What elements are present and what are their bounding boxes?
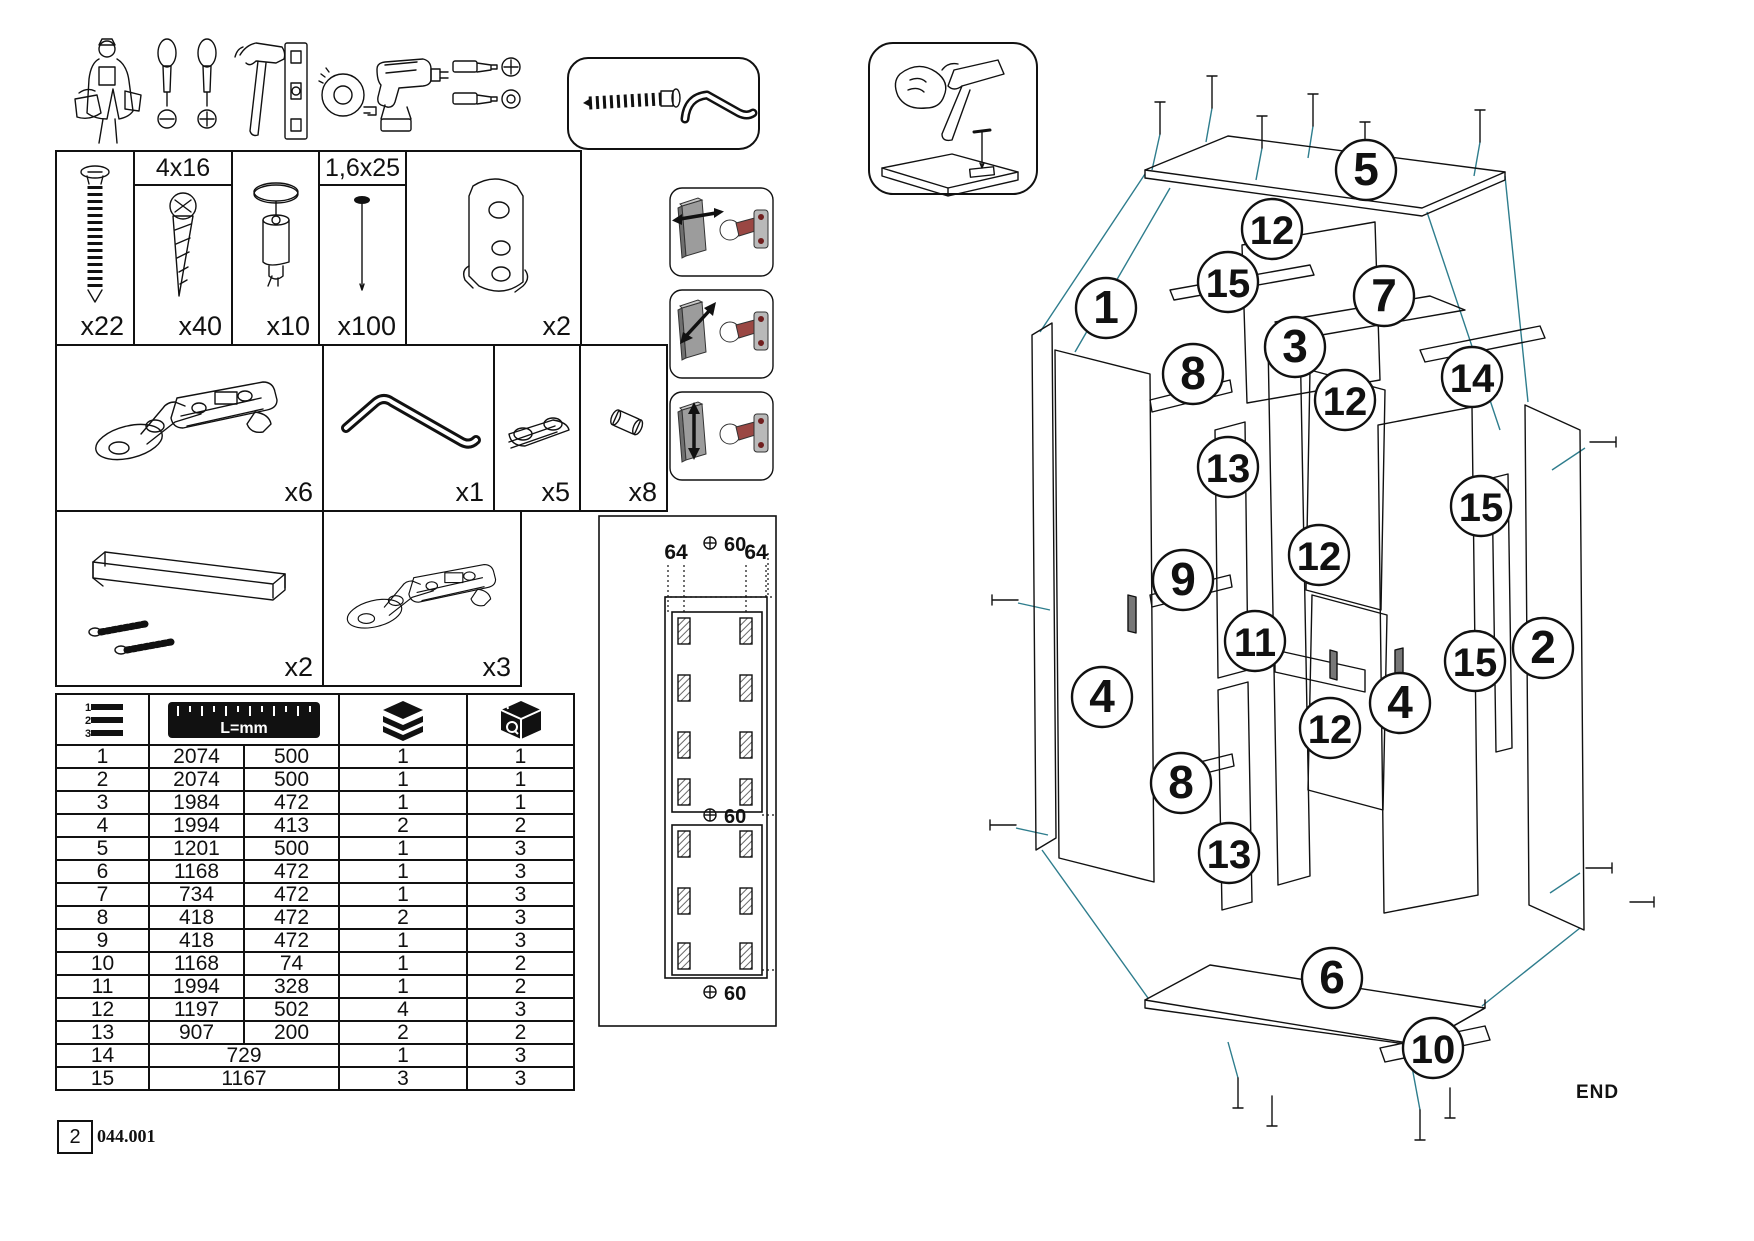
parts-table-cell: 7 [56,883,149,906]
part-balloon: 15 [1198,252,1258,312]
parts-table-cell: 3 [56,791,149,814]
svg-text:11: 11 [1234,621,1276,665]
hanging-rail-bracket-icon [443,170,553,320]
svg-text:3: 3 [85,728,91,740]
parts-table-cell: 3 [467,883,574,906]
offset-60-top: 60 [724,534,746,556]
size-label: 4x16 [133,152,233,186]
part-balloon: 3 [1265,317,1325,377]
parts-table-cell: 1168 [149,860,244,883]
bottom-screw-pins [1233,1078,1455,1140]
qty-label: x8 [628,479,657,506]
hardware-cell-rail-holder: x5 [493,344,581,512]
screw-mark-icon [704,986,716,998]
parts-table-cell: 3 [467,1044,574,1067]
qty-label: x2 [542,313,571,340]
parts-table-cell: 3 [467,998,574,1021]
parts-table-cell: 1 [467,791,574,814]
nail-icon [320,188,405,312]
door-handle [1128,595,1136,633]
middle-partition [1268,333,1310,885]
parts-table-cell: 1994 [149,975,244,998]
confirmat-instruction-box [565,55,762,152]
parts-table-row: 4199441322 [56,814,574,837]
column-package [467,694,574,745]
page-number: 2 [69,1126,80,1149]
parts-table-cell: 8 [56,906,149,929]
tools-row [55,33,525,148]
screw-pins [1155,76,1485,154]
flat-screwdriver-icon [158,39,176,128]
screw-mark-icon [704,537,716,549]
hardware-cell-hinge: x6 [55,344,324,512]
parts-table-cell: 3 [467,860,574,883]
hardware-cell-shelf-pin: x8 [579,344,668,512]
parts-table-cell: 413 [244,814,339,837]
package-icon [499,699,543,741]
parts-table-cell: 15 [56,1067,149,1090]
parts-table-cell: 418 [149,906,244,929]
allen-key-icon [685,95,753,119]
hinge-adjust-box-horizontal [668,186,775,278]
hardware-cell-nail: 1,6x25 x100 [318,150,407,346]
svg-text:12: 12 [1323,380,1368,424]
qty-label: x1 [455,479,484,506]
parts-table-cell: 1201 [149,837,244,860]
parts-table-cell: 2 [339,906,467,929]
svg-text:2: 2 [85,715,91,727]
svg-text:7: 7 [1371,269,1397,321]
top-panel [1145,136,1505,208]
parts-table-cell: 1168 [149,952,244,975]
phillips-screwdriver-icon [198,39,216,128]
parts-table-row: 1390720022 [56,1021,574,1044]
parts-table-cell: 2074 [149,768,244,791]
worker-icon [75,39,141,143]
parts-table-cell: 4 [339,998,467,1021]
svg-text:12: 12 [1250,209,1295,253]
parts-table-cell: 74 [244,952,339,975]
parts-table-cell: 418 [149,929,244,952]
left-side-panel [1032,323,1056,850]
parts-table-cell: 729 [149,1044,339,1067]
balloon-layer: 51215713148121315129111524412813610 [1072,140,1573,1078]
parts-table-cell: 200 [244,1021,339,1044]
offset-60-bottom: 60 [724,983,746,1005]
part-balloon: 12 [1300,698,1360,758]
layers-icon [379,699,427,741]
hardware-cell-hinge-2: x3 [322,510,522,687]
parts-table-cell: 3 [467,929,574,952]
parts-table-row: 2207450011 [56,768,574,791]
parts-table-cell: 734 [149,883,244,906]
assembly-instruction-page: x22 4x16 x40 x10 1,6x25 x100 [0,0,1754,1241]
parts-table-cell: 1 [56,745,149,768]
parts-table-cell: 2 [467,814,574,837]
parts-table-cell: 2 [56,768,149,791]
svg-text:5: 5 [1353,143,1379,195]
left-door [1055,350,1154,882]
parts-table-cell: 2 [467,1021,574,1044]
qty-label: x10 [266,313,310,340]
svg-text:1: 1 [1093,281,1119,333]
parts-table-cell: 1 [339,791,467,814]
parts-table-wrap: 1 2 3 [55,693,575,1091]
svg-text:8: 8 [1180,347,1206,399]
confirmat-screw-icon [57,158,133,308]
parts-table-body: 1207450011220745001131984472114199441322… [56,745,574,1090]
parts-table-cell: 5 [56,837,149,860]
parts-table-cell: 1 [339,975,467,998]
size-label: 1,6x25 [318,152,407,186]
parts-table-cell: 907 [149,1021,244,1044]
parts-table-cell: 500 [244,745,339,768]
parts-table-cell: 500 [244,768,339,791]
hardware-cell-cam-dowel: x10 [231,150,321,346]
qty-label: x100 [337,313,396,340]
hardware-cell-allen-key: x1 [322,344,495,512]
svg-text:14: 14 [1450,357,1495,401]
parts-table-cell: 2 [467,975,574,998]
part-balloon: 12 [1289,525,1349,585]
parts-table-cell: 2074 [149,745,244,768]
part-balloon: 9 [1153,550,1213,610]
parts-table-cell: 3 [467,906,574,929]
part-balloon: 1 [1076,278,1136,338]
parts-table-cell: 1 [467,745,574,768]
parts-table-cell: 1984 [149,791,244,814]
parts-table-cell: 11 [56,975,149,998]
column-layer-count [339,694,467,745]
part-balloon: 15 [1451,476,1511,536]
parts-table-cell: 1994 [149,814,244,837]
hardware-cell-handle: x2 [55,510,324,687]
offset-60-mid: 60 [724,806,746,828]
parts-table-row: 773447213 [56,883,574,906]
numbered-list-icon: 1 2 3 [77,700,129,740]
part-balloon: 4 [1072,667,1132,727]
parts-table-cell: 1 [339,745,467,768]
parts-table: 1 2 3 [55,693,575,1091]
svg-text:2: 2 [1530,621,1556,673]
parts-table-cell: 10 [56,952,149,975]
hinge-icon [77,364,302,489]
screw-mark-icon [704,809,716,821]
parts-table-row: 6116847213 [56,860,574,883]
parts-table-row: 1207450011 [56,745,574,768]
qty-label: x5 [541,479,570,506]
part-balloon: 8 [1151,753,1211,813]
hardware-cell-hanging-rail-bracket: x2 [405,150,582,346]
hardware-cell-wood-screw: 4x16 x40 [133,150,233,346]
drill-driver-icon [377,59,448,131]
parts-table-cell: 2 [339,1021,467,1044]
part-balloon: 2 [1513,618,1573,678]
part-balloon: 13 [1199,823,1259,883]
parts-table-cell: 14 [56,1044,149,1067]
parts-table-row: 1011687412 [56,952,574,975]
dim-64-left: 64 [664,541,688,564]
part-balloon: 8 [1163,344,1223,404]
parts-table-cell: 472 [244,791,339,814]
cam-dowel-icon [233,172,319,322]
hinge-icon [332,536,516,666]
svg-text:6: 6 [1319,951,1345,1003]
hinge-adjust-box-vertical [668,390,775,482]
svg-text:9: 9 [1170,553,1196,605]
shelf-pin-icon [595,394,655,464]
parts-table-header-row: 1 2 3 [56,694,574,745]
parts-table-cell: 4 [56,814,149,837]
parts-table-cell: 12 [56,998,149,1021]
document-code: 044.001 [97,1126,156,1147]
qty-label: x40 [178,313,222,340]
confirmat-screw-icon [583,89,680,107]
handle-icon [67,526,312,666]
parts-table-cell: 1197 [149,998,244,1021]
rail-holder-icon [501,392,577,472]
hand-icon [895,66,945,108]
hinge-icon [720,414,768,452]
part-balloon: 15 [1445,631,1505,691]
parts-table-cell: 1 [339,929,467,952]
parts-table-cell: 1 [339,768,467,791]
parts-table-cell: 1 [339,837,467,860]
parts-table-cell: 3 [467,837,574,860]
svg-text:4: 4 [1387,676,1413,728]
svg-text:13: 13 [1206,447,1251,491]
parts-table-row: 941847213 [56,929,574,952]
column-part-number: 1 2 3 [56,694,149,745]
rail-handle [1330,650,1337,680]
part-balloon: 12 [1315,370,1375,430]
parts-table-row: 5120150013 [56,837,574,860]
parts-table-cell: 2 [339,814,467,837]
hinge-adjust-box-depth [668,288,775,380]
parts-table-cell: 1 [339,860,467,883]
parts-table-cell: 472 [244,929,339,952]
parts-table-cell: 6 [56,860,149,883]
parts-table-cell: 13 [56,1021,149,1044]
qty-label: x22 [80,313,124,340]
part-balloon: 13 [1198,437,1258,497]
allen-key-icon [332,376,487,476]
drawer-rail [1275,650,1365,692]
parts-table-row: 15116733 [56,1067,574,1090]
parts-table-cell: 1167 [149,1067,339,1090]
part-balloon: 7 [1354,266,1414,326]
parts-table-cell: 9 [56,929,149,952]
exploded-assembly-diagram: 51215713148121315129111524412813610 [980,50,1754,1190]
svg-text:15: 15 [1453,641,1498,685]
tape-measure-icon [319,68,376,116]
phillips-bit-icon [453,58,520,76]
parts-table-row: 3198447211 [56,791,574,814]
column-dimensions: L=mm [149,694,339,745]
parts-table-row: 11199432812 [56,975,574,998]
svg-text:12: 12 [1297,535,1342,579]
parts-table-cell: 1 [339,1044,467,1067]
parts-table-cell: 328 [244,975,339,998]
part-balloon: 14 [1442,347,1502,407]
part-balloon: 6 [1302,948,1362,1008]
spirit-level-icon [285,43,307,139]
hardware-cell-confirmat-screw: x22 [55,150,135,346]
part-balloon: 11 [1225,611,1285,671]
parts-table-cell: 502 [244,998,339,1021]
part-balloon: 10 [1403,1018,1463,1078]
dim-64-right: 64 [744,541,768,564]
parts-table-row: 1472913 [56,1044,574,1067]
part-balloon: 4 [1370,673,1430,733]
parts-table-cell: 1 [339,883,467,906]
svg-text:4: 4 [1089,670,1115,722]
parts-table-row: 841847223 [56,906,574,929]
hammer-icon [235,43,285,136]
hinge-icon [720,210,768,248]
door-icon [678,198,706,258]
qty-label: x6 [284,479,313,506]
parts-table-cell: 472 [244,906,339,929]
svg-text:3: 3 [1282,320,1308,372]
ruler-icon: L=mm [166,700,322,740]
part-balloon: 12 [1242,199,1302,259]
parts-table-cell: 500 [244,837,339,860]
svg-text:10: 10 [1411,1028,1456,1072]
svg-text:8: 8 [1168,756,1194,808]
parts-table-cell: 1 [339,952,467,975]
parts-table-cell: 3 [467,1067,574,1090]
svg-text:13: 13 [1207,833,1252,877]
svg-text:15: 15 [1459,486,1504,530]
parts-table-cell: 472 [244,883,339,906]
ruler-label: L=mm [220,720,268,737]
page-number-box: 2 [57,1120,93,1154]
qty-label: x2 [284,654,313,681]
drilling-template-diagram: 64 64 60 60 60 [598,515,777,1027]
svg-text:1: 1 [85,702,91,714]
parts-table-cell: 1 [467,768,574,791]
assembly-leader-lines [1016,108,1585,1110]
hex-bit-icon [453,90,520,108]
parts-table-cell: 472 [244,860,339,883]
parts-table-cell: 3 [339,1067,467,1090]
parts-table-cell: 2 [467,952,574,975]
hinge-icon [720,312,768,350]
parts-table-row: 12119750243 [56,998,574,1021]
qty-label: x3 [482,654,511,681]
wood-screw-icon [135,188,231,312]
part-balloon: 5 [1336,140,1396,200]
hinge-plate-marks [678,618,752,969]
svg-text:12: 12 [1308,708,1353,752]
svg-text:15: 15 [1206,262,1251,306]
